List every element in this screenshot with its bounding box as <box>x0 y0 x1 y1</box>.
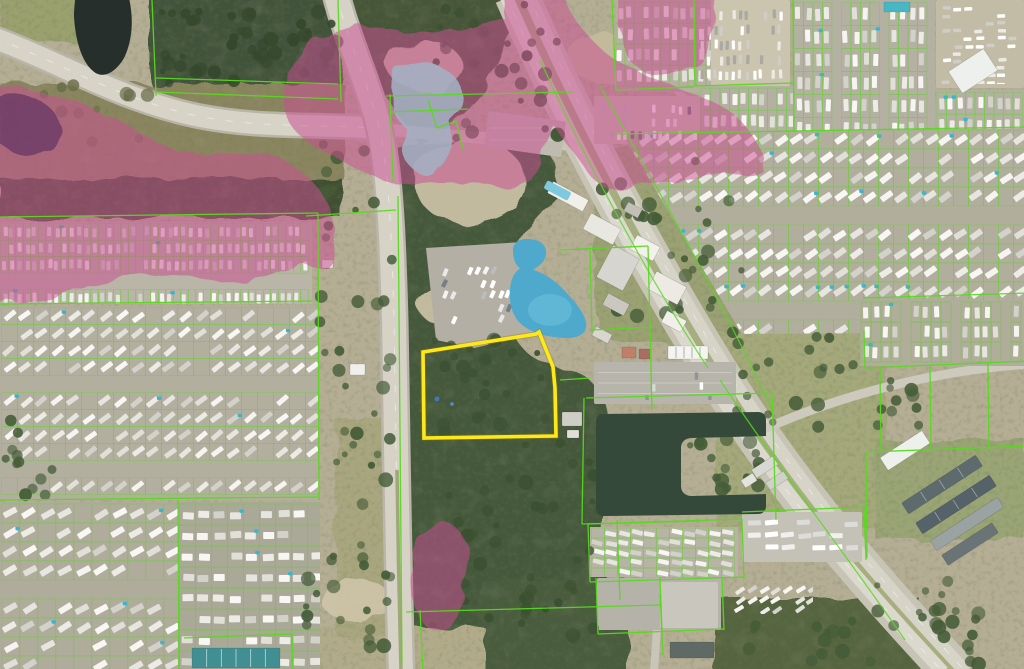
mobile-home <box>85 293 89 302</box>
mobile-home <box>230 512 241 519</box>
mobile-home <box>715 26 718 35</box>
swimming-pool <box>868 343 873 347</box>
mobile-home <box>766 544 779 549</box>
tree-clump <box>2 455 10 463</box>
tree-clump <box>439 361 450 372</box>
mobile-home <box>942 327 947 338</box>
tree-clump <box>738 370 748 380</box>
swimming-pool <box>51 620 56 624</box>
mobile-home <box>974 326 979 337</box>
tree-clump <box>313 590 320 597</box>
mobile-home <box>942 15 950 19</box>
tree-clump <box>922 587 929 594</box>
tree-clump <box>929 605 941 617</box>
mobile-home <box>616 50 621 61</box>
mobile-home <box>262 574 273 581</box>
tree-clump <box>179 53 185 59</box>
mobile-home <box>963 37 971 41</box>
mobile-home <box>862 31 867 43</box>
mobile-home <box>955 45 963 49</box>
tree-clump <box>503 390 511 398</box>
mobile-home <box>910 8 915 20</box>
mobile-home <box>198 511 209 518</box>
mobile-home <box>852 77 858 89</box>
swimming-pool <box>877 134 882 138</box>
tree-clump <box>965 647 974 656</box>
mobile-home <box>778 93 783 104</box>
tree-clump <box>174 60 186 72</box>
tree-clump <box>874 582 880 588</box>
tree-clump <box>383 364 391 372</box>
mobile-home <box>986 44 994 48</box>
tree-clump <box>938 591 945 598</box>
mobile-home <box>199 553 210 560</box>
tree-clump <box>303 603 309 609</box>
mobile-park-southwest-ground <box>0 502 178 669</box>
mobile-home <box>93 293 97 302</box>
mobile-home <box>100 293 104 302</box>
mobile-home <box>863 307 868 318</box>
tree-clump <box>227 12 236 21</box>
mobile-home <box>279 575 290 582</box>
mobile-home <box>720 27 723 36</box>
mobile-home <box>182 594 193 601</box>
tree-clump <box>13 428 23 438</box>
tree-clump <box>237 27 246 36</box>
swimming-pool <box>859 190 864 194</box>
swimming-pool <box>816 286 821 290</box>
striped-warehouse <box>668 346 708 359</box>
swimming-pool <box>254 529 259 533</box>
swimming-pool <box>741 284 746 288</box>
mobile-home <box>872 76 877 88</box>
tree-clump <box>681 255 688 262</box>
mobile-home <box>243 293 247 302</box>
mobile-home <box>700 70 703 79</box>
mobile-home <box>726 56 730 65</box>
mobile-home <box>804 100 809 112</box>
tree-clump <box>357 541 365 549</box>
mobile-home <box>738 70 741 79</box>
tree-clump <box>789 396 803 410</box>
mobile-park-west-ground <box>0 306 318 500</box>
tree-clump <box>350 427 363 440</box>
mobile-home <box>719 71 722 80</box>
mobile-home <box>884 306 889 317</box>
red-roof-building <box>639 349 651 359</box>
mobile-home <box>844 55 849 67</box>
mobile-home <box>924 326 929 337</box>
mobile-home <box>151 293 155 302</box>
mobile-home <box>998 29 1006 33</box>
mobile-park-north-ground <box>793 0 935 134</box>
mobile-home <box>54 294 58 303</box>
mobile-home <box>183 512 194 520</box>
mobile-home <box>1014 306 1020 317</box>
swimming-pool <box>159 509 164 513</box>
tree-clump <box>566 628 581 643</box>
mobile-home <box>843 99 849 111</box>
tree-clump <box>538 374 545 381</box>
mobile-home <box>953 29 961 33</box>
tree-clump <box>918 613 927 622</box>
mobile-home <box>214 616 225 623</box>
tree-clump <box>455 8 465 18</box>
mobile-home <box>215 533 226 540</box>
tree-clump <box>376 638 391 653</box>
tree-clump <box>806 655 818 667</box>
tree-clump <box>971 606 985 620</box>
tree-clump <box>694 438 704 448</box>
mobile-home <box>138 294 142 303</box>
mobile-home <box>934 306 939 317</box>
tree-clump <box>706 303 715 312</box>
mobile-home <box>852 100 858 112</box>
tree-clump <box>482 505 493 516</box>
swimming-pool <box>170 291 175 295</box>
mobile-home <box>707 57 710 66</box>
red-roof-building-roof <box>639 349 651 359</box>
mobile-home <box>865 327 870 338</box>
small-road-south-surface <box>654 628 657 669</box>
tree-clump <box>877 404 887 414</box>
blue-structure-dot <box>450 402 454 406</box>
swimming-pool <box>255 551 259 555</box>
mobile-home <box>652 384 656 392</box>
mobile-home <box>942 29 950 33</box>
mobile-home <box>919 100 924 112</box>
mobile-home <box>182 554 193 561</box>
tree-clump <box>363 607 371 615</box>
tree-clump <box>816 648 828 660</box>
tree-clump <box>520 610 529 619</box>
mobile-home <box>873 100 879 112</box>
mobile-home <box>751 115 756 126</box>
mobile-home <box>915 346 920 357</box>
tree-clump <box>519 595 527 603</box>
tree-clump <box>570 588 577 595</box>
tree-clump <box>321 166 332 177</box>
mobile-home <box>758 69 762 78</box>
tree-clump <box>493 522 499 528</box>
lagoon-highlight <box>528 294 572 326</box>
mobile-home <box>263 615 274 622</box>
tree-clump <box>505 474 514 483</box>
mobile-home <box>997 98 1002 109</box>
mobile-home <box>181 658 192 665</box>
mobile-home <box>953 52 961 56</box>
mobile-home <box>997 21 1005 25</box>
tree-clump <box>226 39 237 50</box>
striped-warehouse-roof <box>668 346 708 359</box>
mobile-home <box>864 53 869 65</box>
tree-clump <box>541 414 551 424</box>
tree-clump <box>67 79 79 91</box>
tree-clump <box>141 88 154 101</box>
tree-clump <box>818 633 832 647</box>
mobile-home <box>807 8 813 20</box>
swimming-pool <box>944 95 949 99</box>
mobile-home <box>982 326 987 337</box>
tree-clump <box>743 643 756 656</box>
mobile-home <box>773 9 776 18</box>
mobile-home <box>160 293 164 302</box>
mobile-home <box>814 32 819 44</box>
mobile-home <box>744 11 747 20</box>
mobile-home <box>229 615 240 622</box>
mobile-home <box>988 96 993 107</box>
swimming-pool <box>123 602 128 606</box>
tree-clump <box>965 656 976 667</box>
tree-clump <box>695 206 701 212</box>
mobile-home <box>214 574 225 581</box>
swimming-pool <box>922 191 927 195</box>
tree-clump <box>534 350 540 356</box>
mobile-home <box>226 293 230 302</box>
mobile-home <box>779 69 783 78</box>
swimming-pool <box>15 394 19 398</box>
mobile-home <box>732 94 737 105</box>
mobile-home <box>719 41 723 50</box>
mobile-home <box>890 78 895 90</box>
tree-clump <box>548 501 559 512</box>
dark-building-south <box>670 642 714 658</box>
small-road-south <box>654 628 657 669</box>
mobile-home <box>942 345 947 356</box>
mobile-home <box>738 42 741 51</box>
mobile-home <box>943 58 951 62</box>
mobile-home <box>974 29 982 33</box>
tree-clump <box>35 473 46 484</box>
mobile-home <box>900 54 905 66</box>
mobile-home <box>719 11 723 20</box>
blue-structure-dot <box>435 397 440 402</box>
mobile-home <box>279 637 290 644</box>
mobile-home <box>199 293 203 302</box>
mobile-home <box>918 32 924 44</box>
tree-clump <box>384 353 396 365</box>
mobile-home <box>816 100 821 112</box>
tree-clump <box>195 8 203 16</box>
tree-clump <box>450 352 458 360</box>
mobile-home <box>974 307 980 318</box>
mobile-home <box>183 574 194 581</box>
mobile-home <box>871 30 876 42</box>
tree-clump <box>327 20 335 28</box>
mobile-home <box>746 55 750 64</box>
mobile-home <box>230 596 241 603</box>
mobile-home <box>826 99 832 111</box>
mobile-home <box>250 293 254 302</box>
tree-clump <box>437 418 450 431</box>
mobile-home <box>962 326 968 337</box>
tree-clump <box>527 573 535 581</box>
tree-clump <box>812 421 824 433</box>
tree-clump <box>165 79 173 87</box>
mobile-home <box>197 594 208 601</box>
tree-clump <box>667 252 675 260</box>
mobile-home <box>985 307 990 318</box>
small-building-roof <box>562 412 582 426</box>
swimming-pool <box>952 95 957 99</box>
mobile-home <box>815 76 821 88</box>
tree-clump <box>160 50 170 60</box>
mobile-home <box>230 531 241 538</box>
swimming-pool <box>874 285 879 289</box>
tree-clump <box>322 184 335 197</box>
tree-clump <box>383 597 392 606</box>
tree-clump <box>287 33 300 46</box>
tree-clump <box>180 9 190 19</box>
tree-clump <box>804 345 814 355</box>
mobile-home <box>294 659 305 666</box>
mobile-home <box>707 69 710 78</box>
tree-clump <box>384 433 396 445</box>
aerial-parcel-map <box>0 0 1024 669</box>
mobile-home <box>746 40 750 49</box>
tree-clump <box>480 485 490 495</box>
roadside-building <box>350 364 365 375</box>
tree-clump <box>364 640 377 653</box>
tree-clump <box>357 498 369 510</box>
tree-clump <box>159 9 166 16</box>
mobile-home <box>740 93 745 104</box>
mobile-home <box>872 347 877 358</box>
swimming-pool <box>814 192 819 196</box>
tree-clump <box>454 517 465 528</box>
mobile-home <box>279 596 290 603</box>
mobile-home <box>842 31 848 43</box>
mobile-home <box>812 545 825 550</box>
mobile-home <box>700 382 704 390</box>
small-building <box>567 430 579 438</box>
rv-park-south <box>590 527 738 578</box>
tree-clump <box>675 305 683 313</box>
tree-clump <box>554 598 563 607</box>
mobile-home <box>982 346 987 357</box>
tree-clump <box>445 492 452 499</box>
mobile-home <box>863 8 868 20</box>
mobile-home <box>852 54 857 66</box>
tree-clump <box>242 7 257 22</box>
swimming-pool <box>288 572 293 576</box>
mobile-home <box>235 293 239 302</box>
mobile-home <box>914 306 919 317</box>
mobile-home <box>933 346 938 357</box>
mobile-home <box>732 10 735 19</box>
mobile-home <box>974 345 979 356</box>
tree-clump <box>302 620 312 630</box>
tree-clump <box>168 9 176 17</box>
mobile-home <box>922 346 928 357</box>
mobile-home <box>824 31 829 43</box>
mobile-home <box>1014 326 1019 337</box>
swimming-pool <box>820 73 825 77</box>
mobile-home <box>997 74 1005 78</box>
mobile-home <box>778 115 783 126</box>
mobile-home <box>874 306 879 317</box>
tree-clump <box>160 68 166 74</box>
tree-clump <box>738 267 744 273</box>
mobile-home <box>892 55 897 67</box>
mobile-home <box>1013 346 1018 357</box>
mobile-home <box>997 14 1005 18</box>
mobile-home <box>998 36 1006 40</box>
tree-clump <box>848 617 857 626</box>
mobile-home <box>816 54 821 66</box>
mobile-home <box>199 616 210 623</box>
tree-clump <box>57 82 67 92</box>
mobile-home <box>733 55 736 64</box>
teal-pool-building-roof <box>884 2 910 12</box>
mobile-home <box>965 45 973 49</box>
mobile-home <box>919 7 924 19</box>
tree-clump <box>642 197 657 212</box>
mobile-home <box>777 24 781 33</box>
tree-clump <box>479 389 491 401</box>
mobile-home <box>213 511 224 518</box>
mobile-home <box>772 26 775 35</box>
tree-clump <box>431 337 438 344</box>
tree-clump <box>342 451 348 457</box>
mobile-home <box>795 7 800 19</box>
mobile-home <box>70 293 74 302</box>
tree-clump <box>296 19 306 29</box>
tree-clump <box>357 552 368 563</box>
tree-clump <box>712 473 721 482</box>
tree-clump <box>368 197 380 209</box>
tree-clump <box>891 395 902 406</box>
tree-clump <box>838 626 851 639</box>
mobile-home <box>748 532 761 538</box>
mobile-home <box>883 326 888 337</box>
tree-clump <box>542 606 549 613</box>
tree-clump <box>835 644 850 659</box>
swimming-pool <box>862 284 867 288</box>
tree-clump <box>349 441 357 449</box>
tree-clump <box>967 630 978 641</box>
tree-clump <box>437 24 443 30</box>
tree-clump <box>484 613 493 622</box>
tree-clump <box>208 66 221 79</box>
tree-clump <box>263 32 278 47</box>
tree-clump <box>376 381 390 395</box>
mobile-home <box>846 545 859 551</box>
mobile-home <box>789 116 794 127</box>
mobile-home <box>797 77 802 89</box>
tree-clump <box>330 553 337 560</box>
mobile-home <box>778 56 782 65</box>
mobile-home <box>953 8 961 12</box>
tree-clump <box>914 421 923 430</box>
mobile-home <box>293 636 304 643</box>
mobile-home <box>805 78 810 90</box>
tree-clump <box>764 357 773 366</box>
mobile-home <box>245 616 256 623</box>
mobile-home <box>246 574 257 581</box>
tree-clump <box>585 458 593 466</box>
tree-clump <box>752 449 761 458</box>
mobile-home <box>231 553 242 560</box>
mobile-home <box>943 6 951 10</box>
tree-clump <box>824 333 834 343</box>
mobile-home <box>746 71 749 80</box>
mobile-home <box>777 41 781 50</box>
tree-clump <box>479 353 492 366</box>
tree-clump <box>190 14 201 25</box>
mobile-home <box>1007 44 1015 48</box>
tree-clump <box>518 475 533 490</box>
